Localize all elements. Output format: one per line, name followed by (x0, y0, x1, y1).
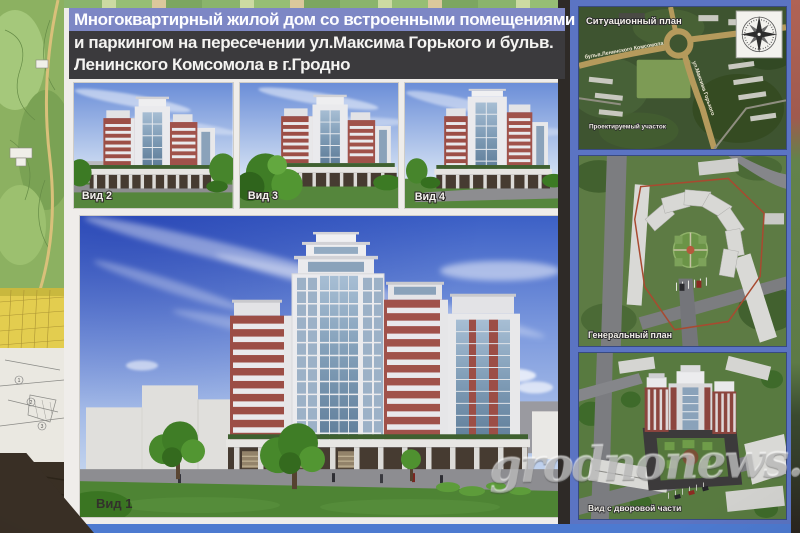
situational-plan-panel: Ситуационный план бульв.Ленинского Комсо… (578, 6, 787, 150)
poster-title-line2: и паркингом на пересечении ул.Максима Го… (74, 32, 560, 54)
cadastral-number: 3 (41, 424, 44, 430)
view-4-label: Вид 4 (415, 191, 445, 203)
thumbnail-row: Вид 2 (73, 82, 565, 209)
view-2-label: Вид 2 (82, 190, 112, 202)
photo-of-presentation-board: 1 2 3 Многоквартирный жилой дом со встро… (0, 0, 800, 533)
rendering-view-2: Вид 2 (73, 82, 234, 209)
poster-title-line3: Ленинского Комсомола в г.Гродно (74, 54, 560, 76)
compass-rose-icon (736, 11, 782, 58)
rendering-view-3: Вид 3 (239, 82, 400, 209)
poster-title: Многоквартирный жилой дом со встроенными… (69, 8, 565, 79)
poster-bottom-blue-strip (64, 524, 791, 533)
view-1-label: Вид 1 (96, 496, 132, 511)
general-plan-panel: Генеральный план (578, 155, 787, 347)
cadastral-number: 2 (30, 400, 33, 406)
courtyard-view-title: Вид с дворовой части (588, 503, 681, 513)
map-sliver-above-poster (64, 0, 564, 8)
site-label: Проектируемый участок (589, 123, 667, 131)
poster-title-line1: Многоквартирный жилой дом со встроенными… (69, 8, 565, 31)
watermark: grodnonews.by (488, 432, 800, 495)
view-3-label: Вид 3 (248, 190, 278, 202)
rendering-view-4: Вид 4 (404, 82, 565, 209)
general-plan-title: Генеральный план (588, 330, 672, 340)
situational-plan-title: Ситуационный план (586, 16, 682, 27)
poster-title-rest: и паркингом на пересечении ул.Максима Го… (69, 31, 565, 79)
cadastral-number: 1 (18, 378, 21, 384)
